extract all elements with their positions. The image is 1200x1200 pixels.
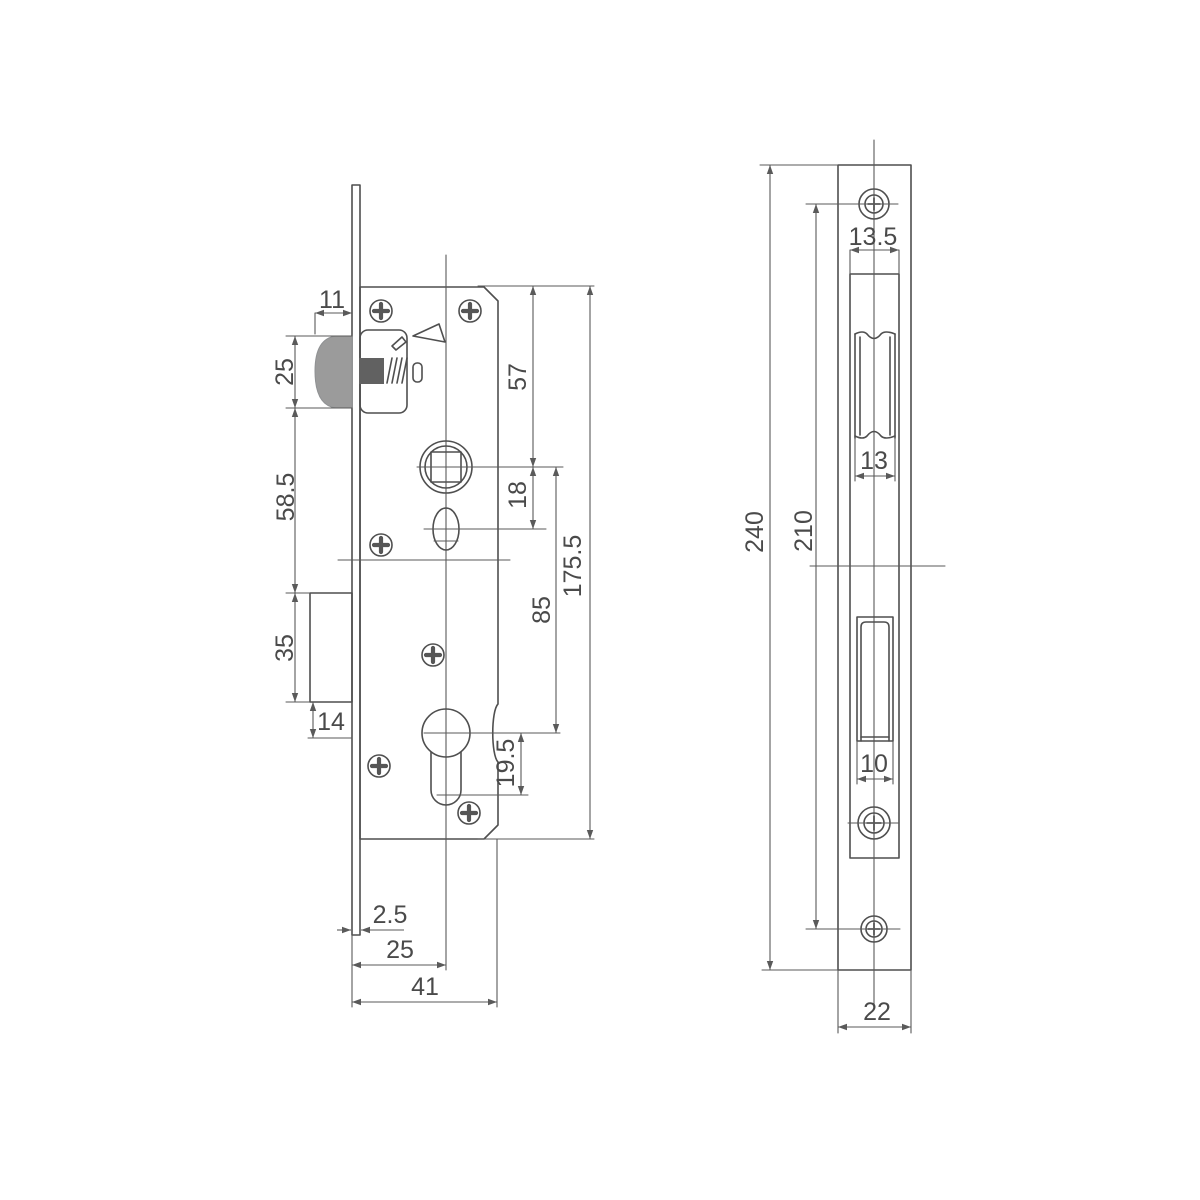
dim-label-backset: 25 (386, 936, 414, 964)
dim-label-plate-height: 240 (741, 511, 769, 553)
dimension-latch-to-bolt: 58.5 (272, 408, 300, 593)
dim-label-cylinder-reach: 19.5 (492, 739, 520, 788)
latch-trigger-wedge (413, 324, 445, 342)
dimension-spindle-to-follower: 18 (504, 467, 533, 529)
latch-stop-tab (392, 337, 406, 350)
faceplate-front-view: 13.5 13 10 22 240 210 (741, 140, 945, 1033)
dim-label-latch-protrusion: 11 (319, 286, 345, 314)
screw-head (370, 534, 392, 556)
dim-label-latch-to-bolt: 58.5 (272, 473, 300, 522)
dim-label-spindle-to-follower: 18 (504, 481, 532, 509)
lock-body-side-view: 11 25 58.5 35 14 57 18 85 (271, 185, 594, 1007)
lock-dimension-drawing: 11 25 58.5 35 14 57 18 85 (0, 0, 1200, 1200)
dimension-latch-width: 13 (855, 447, 895, 476)
dim-label-plate-thickness: 2.5 (373, 901, 408, 929)
dimension-cylinder-reach: 19.5 (492, 733, 521, 795)
screw-head (459, 300, 481, 322)
dim-label-spindle-to-cylinder: 85 (528, 596, 556, 624)
extension-lines (760, 165, 911, 1033)
dim-label-plate-width: 22 (863, 998, 891, 1026)
dimension-bolt-to-cylinder: 14 (313, 702, 345, 738)
deadbolt-cutout (857, 617, 893, 741)
dimension-latch-protrusion: 11 (315, 286, 352, 314)
dimension-case-height: 175.5 (559, 286, 590, 839)
drawing-canvas: 11 25 58.5 35 14 57 18 85 (0, 0, 1200, 1200)
latch-spring (387, 358, 407, 383)
dimension-plate-width: 22 (838, 998, 911, 1027)
screw-head (458, 802, 480, 824)
dimension-bolt-cutout-width: 10 (857, 750, 893, 779)
dimension-spindle-to-cylinder: 85 (528, 467, 556, 733)
dimension-backset: 25 (352, 936, 446, 965)
deadbolt-slot (310, 593, 352, 702)
dimension-latch-height: 25 (271, 336, 299, 408)
dim-label-bolt-to-cylinder: 14 (317, 708, 345, 736)
screw-head (422, 644, 444, 666)
latch-cutout (855, 332, 895, 438)
dim-label-latch-width: 13 (860, 447, 888, 475)
screw-head (368, 755, 390, 777)
latch-bolt-assembly (315, 324, 445, 413)
dim-label-screw-spacing: 210 (790, 510, 818, 552)
dim-label-bolt-cutout-width: 10 (860, 750, 888, 778)
screw-head (370, 300, 392, 322)
dimension-case-depth: 41 (352, 973, 497, 1002)
dim-label-bolt-height: 35 (271, 634, 299, 662)
dim-label-case-height: 175.5 (559, 535, 587, 598)
dim-label-latch-cutout-width: 13.5 (849, 223, 898, 251)
dimension-latch-cutout-width: 13.5 (849, 223, 899, 251)
latch-shaft (359, 358, 384, 384)
dimension-bolt-height: 35 (271, 593, 299, 702)
dim-label-top-to-spindle: 57 (504, 363, 532, 391)
dim-label-case-depth: 41 (411, 973, 439, 1001)
dimension-top-to-spindle: 57 (504, 286, 533, 467)
latch-guide-slot (413, 363, 422, 382)
dimension-plate-height: 240 (741, 165, 770, 970)
dimension-plate-thickness: 2.5 (337, 901, 407, 930)
dim-label-latch-height: 25 (271, 358, 299, 386)
latch-bolt-head (315, 336, 352, 408)
